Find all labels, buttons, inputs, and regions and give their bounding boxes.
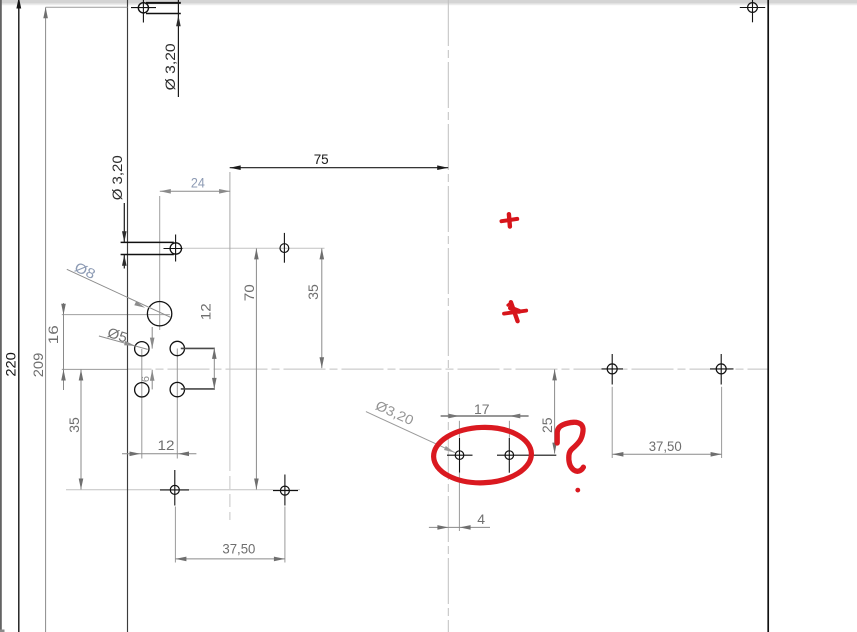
- svg-text:Ø 3,20: Ø 3,20: [162, 43, 178, 90]
- svg-text:12: 12: [197, 303, 213, 320]
- svg-text:220: 220: [3, 352, 19, 377]
- svg-text:209: 209: [30, 353, 46, 378]
- svg-text:37,50: 37,50: [649, 438, 682, 454]
- svg-text:17: 17: [474, 401, 490, 417]
- svg-text:25: 25: [539, 417, 555, 433]
- svg-text:24: 24: [191, 174, 205, 190]
- svg-text:35: 35: [305, 284, 321, 300]
- svg-text:35: 35: [66, 417, 82, 433]
- svg-text:37,50: 37,50: [222, 541, 255, 557]
- svg-text:6: 6: [140, 376, 152, 382]
- svg-text:12: 12: [158, 437, 175, 453]
- svg-text:75: 75: [314, 151, 329, 167]
- svg-text:Ø 3,20: Ø 3,20: [109, 155, 125, 200]
- svg-text:70: 70: [241, 284, 257, 301]
- svg-text:16: 16: [45, 325, 61, 344]
- svg-text:4: 4: [477, 511, 485, 527]
